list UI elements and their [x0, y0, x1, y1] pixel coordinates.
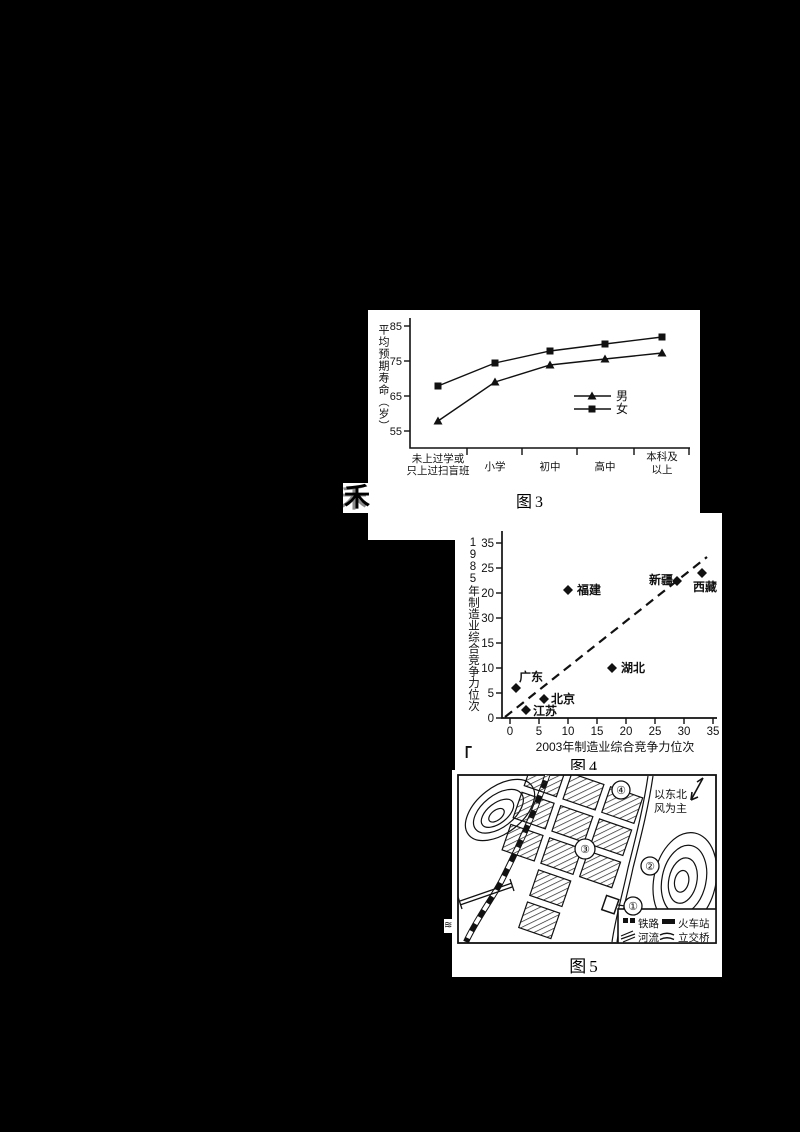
y-tick-label: 55	[390, 426, 402, 438]
figure4-x-tick-marks	[510, 718, 713, 724]
edge-squiggle-mark: ≋	[444, 919, 457, 933]
point-xizang	[697, 568, 707, 578]
figure3-y-tick-labels: 85 75 65 55	[390, 321, 402, 438]
point-guangdong	[511, 683, 521, 693]
category-label: 以上	[652, 464, 673, 476]
point-label: 湖北	[621, 660, 645, 675]
figure3-axes	[410, 318, 690, 448]
y-tick-label: 10	[481, 663, 494, 675]
figure3-y-tick-marks	[404, 326, 410, 431]
figure5-caption: 图5	[452, 952, 718, 977]
figure4-y-tick-labels: 35 25 20 30 15 10 5 0	[481, 538, 494, 725]
x-tick-label: 25	[649, 726, 662, 738]
corner-bracket-mark: 「	[455, 741, 472, 766]
marker-label-1: ①	[628, 901, 638, 913]
x-tick-label: 5	[536, 726, 542, 738]
y-tick-label: 25	[481, 563, 494, 575]
legend-female-marker	[589, 406, 596, 413]
figure4-axes	[502, 531, 717, 718]
figure5-map: 以东北 风为主 铁路 火车站 河流	[452, 770, 722, 948]
marker-label-2: ②	[645, 861, 655, 873]
railway-icon	[623, 918, 628, 923]
x-tick-label: 35	[707, 726, 720, 738]
x-tick-label: 10	[562, 726, 575, 738]
wind-note-line2: 风为主	[654, 802, 687, 815]
y-tick-label: 35	[481, 538, 494, 550]
y-tick-label: 20	[481, 588, 494, 600]
wind-note-line1: 以东北	[654, 788, 687, 801]
y-tick-label: 65	[390, 391, 402, 403]
category-label: 初中	[540, 460, 561, 473]
figure4-chart: 35 25 20 30 15 10 5 0 0 5 10 15 20 25 30…	[455, 513, 722, 751]
point-label: 福建	[576, 582, 602, 597]
x-tick-label: 15	[591, 726, 604, 738]
figure3-legend: 男 女	[574, 389, 628, 416]
point-label: 西藏	[693, 579, 717, 594]
x-tick-label: 20	[620, 726, 633, 738]
point-fujian	[563, 585, 573, 595]
figure3-category-labels: 未上过学或 只上过扫盲班 小学 初中 高中 本科及 以上	[407, 450, 679, 477]
figure5-panel: 以东北 风为主 铁路 火车站 河流	[452, 770, 722, 977]
figure4-point-labels: 广东 江苏 北京 福建 湖北 新疆 西藏	[519, 572, 717, 718]
y-tick-label: 30	[481, 613, 494, 625]
x-tick-label: 30	[678, 726, 691, 738]
legend-railway-label: 铁路	[638, 917, 659, 930]
legend-station-label: 火车站	[678, 917, 710, 930]
figure4-x-tick-labels: 0 5 10 15 20 25 30 35	[507, 726, 720, 738]
x-tick-label: 0	[507, 726, 513, 738]
legend-male-label: 男	[616, 389, 628, 403]
legend-female-label: 女	[616, 401, 628, 416]
figure3-caption: 图3	[368, 488, 694, 512]
legend-river-label: 河流	[638, 931, 659, 944]
y-tick-label: 5	[488, 688, 494, 700]
figure4-panel: 1985年制造业综合竞争力位次 35 25 20 30 15 10 5 0 0 …	[455, 513, 722, 778]
figure4-points	[511, 568, 707, 715]
figure3-chart: 85 75 65 55 男	[368, 310, 700, 484]
figure3-panel: 平均预期寿命（岁） 85 75 65 55	[368, 310, 700, 540]
category-label: 小学	[485, 460, 506, 473]
point-label: 新疆	[649, 572, 673, 587]
point-beijing	[539, 694, 549, 704]
point-hubei	[607, 663, 617, 673]
marker-label-3: ③	[580, 844, 590, 856]
category-label: 未上过学或	[412, 452, 465, 465]
marker-label-4: ④	[616, 785, 626, 797]
railway-icon	[630, 918, 635, 923]
point-label: 广东	[519, 669, 543, 684]
category-label: 本科及	[646, 450, 678, 463]
cut-off-character: 禾	[343, 483, 371, 513]
y-tick-label: 0	[488, 713, 494, 725]
y-tick-label: 15	[481, 638, 494, 650]
figure4-y-tick-marks	[496, 543, 502, 718]
train-station-icon	[662, 919, 675, 924]
category-label: 高中	[595, 460, 616, 473]
series-male-markers	[434, 349, 667, 425]
category-label: 只上过扫盲班	[407, 464, 470, 477]
y-tick-label: 85	[390, 321, 402, 333]
y-tick-label: 75	[390, 356, 402, 368]
legend-overpass-label: 立交桥	[678, 931, 710, 944]
point-label: 北京	[551, 691, 575, 706]
point-jiangsu	[521, 705, 531, 715]
scanned-page: { "colors": {"page_bg": "#000000", "pane…	[0, 0, 800, 1132]
